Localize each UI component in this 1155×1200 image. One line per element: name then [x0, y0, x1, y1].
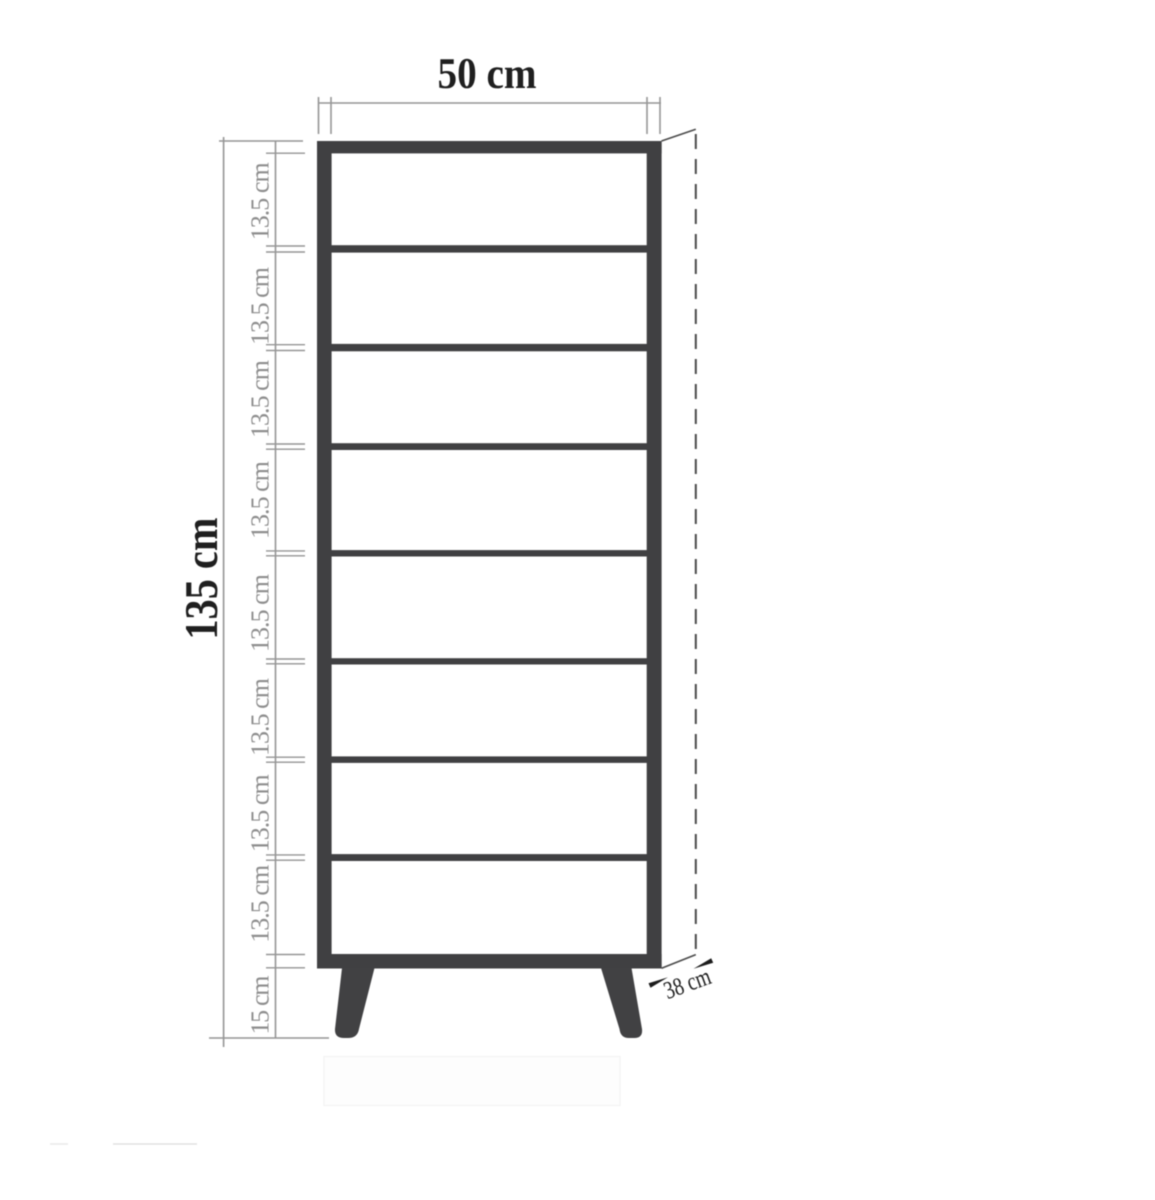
- svg-text:13.5 cm: 13.5 cm: [246, 360, 275, 438]
- svg-text:13.5 cm: 13.5 cm: [246, 267, 275, 345]
- svg-text:13.5 cm: 13.5 cm: [246, 774, 275, 852]
- svg-text:50 cm: 50 cm: [438, 49, 537, 98]
- svg-text:13.5 cm: 13.5 cm: [246, 162, 275, 240]
- svg-text:15 cm: 15 cm: [246, 976, 275, 1035]
- svg-text:13.5 cm: 13.5 cm: [246, 574, 275, 652]
- svg-text:135 cm: 135 cm: [176, 518, 228, 640]
- svg-text:13.5 cm: 13.5 cm: [246, 865, 275, 943]
- svg-text:13.5 cm: 13.5 cm: [246, 678, 275, 756]
- svg-text:13.5 cm: 13.5 cm: [246, 461, 275, 539]
